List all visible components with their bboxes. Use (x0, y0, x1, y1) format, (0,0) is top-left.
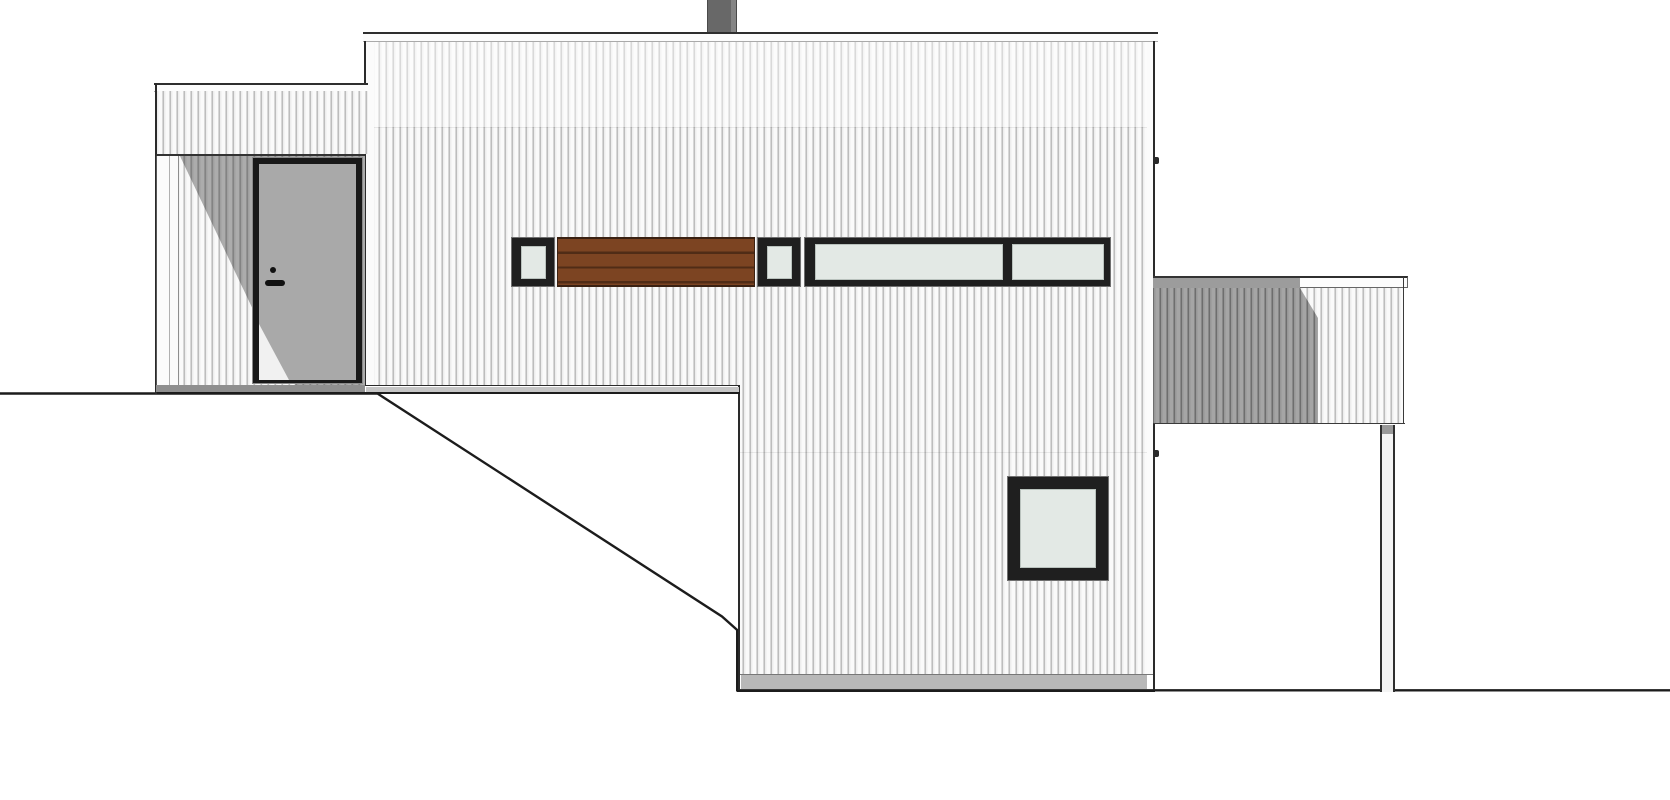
base-line-left (156, 392, 740, 394)
entry-wing-siding-band (156, 91, 368, 154)
window-square (1007, 476, 1109, 581)
roof-fascia-main (363, 32, 1158, 42)
wood-slat-panel (557, 237, 755, 288)
terrace-shadow-siding (1153, 288, 1318, 423)
porch-corner-board (156, 154, 179, 385)
window-small-1-glass (521, 246, 546, 279)
corner-board-joint-line (169, 154, 170, 385)
terrace-fascia-shaded (1153, 276, 1300, 289)
siding-light-band (365, 41, 1155, 127)
door-peephole (270, 267, 276, 273)
siding-seam-line-lower (740, 452, 1155, 453)
lower-volume-left-edge (738, 385, 740, 691)
window-long-pane-2 (1012, 244, 1104, 280)
lower-base-strip (741, 675, 1147, 689)
terrace-post (1380, 425, 1395, 692)
window-small-1 (511, 237, 555, 288)
elevation-drawing (0, 0, 1670, 800)
window-square-glass (1020, 489, 1096, 568)
door-handle (265, 280, 285, 286)
terrace-bottom-edge (1153, 423, 1405, 425)
lower-siding-bottom-line (740, 674, 1153, 675)
downspout-bracket-upper (1153, 157, 1159, 164)
entry-door (253, 158, 362, 383)
chimney-highlight (731, 0, 736, 34)
porch-floor-strip (156, 385, 365, 392)
door-leaf (259, 164, 356, 380)
window-band-long (804, 237, 1111, 288)
porch-ceiling-line (156, 154, 365, 156)
window-small-2 (757, 237, 801, 288)
downspout-bracket-lower (1153, 450, 1159, 457)
terrace-post-cap (1382, 425, 1393, 434)
siding-seam-line-upper (365, 127, 1155, 128)
chimney (707, 0, 737, 34)
terrace-right-edge (1403, 277, 1405, 424)
window-long-pane-1 (815, 244, 1003, 280)
base-line-right (737, 690, 1155, 692)
window-small-2-glass (767, 246, 792, 279)
